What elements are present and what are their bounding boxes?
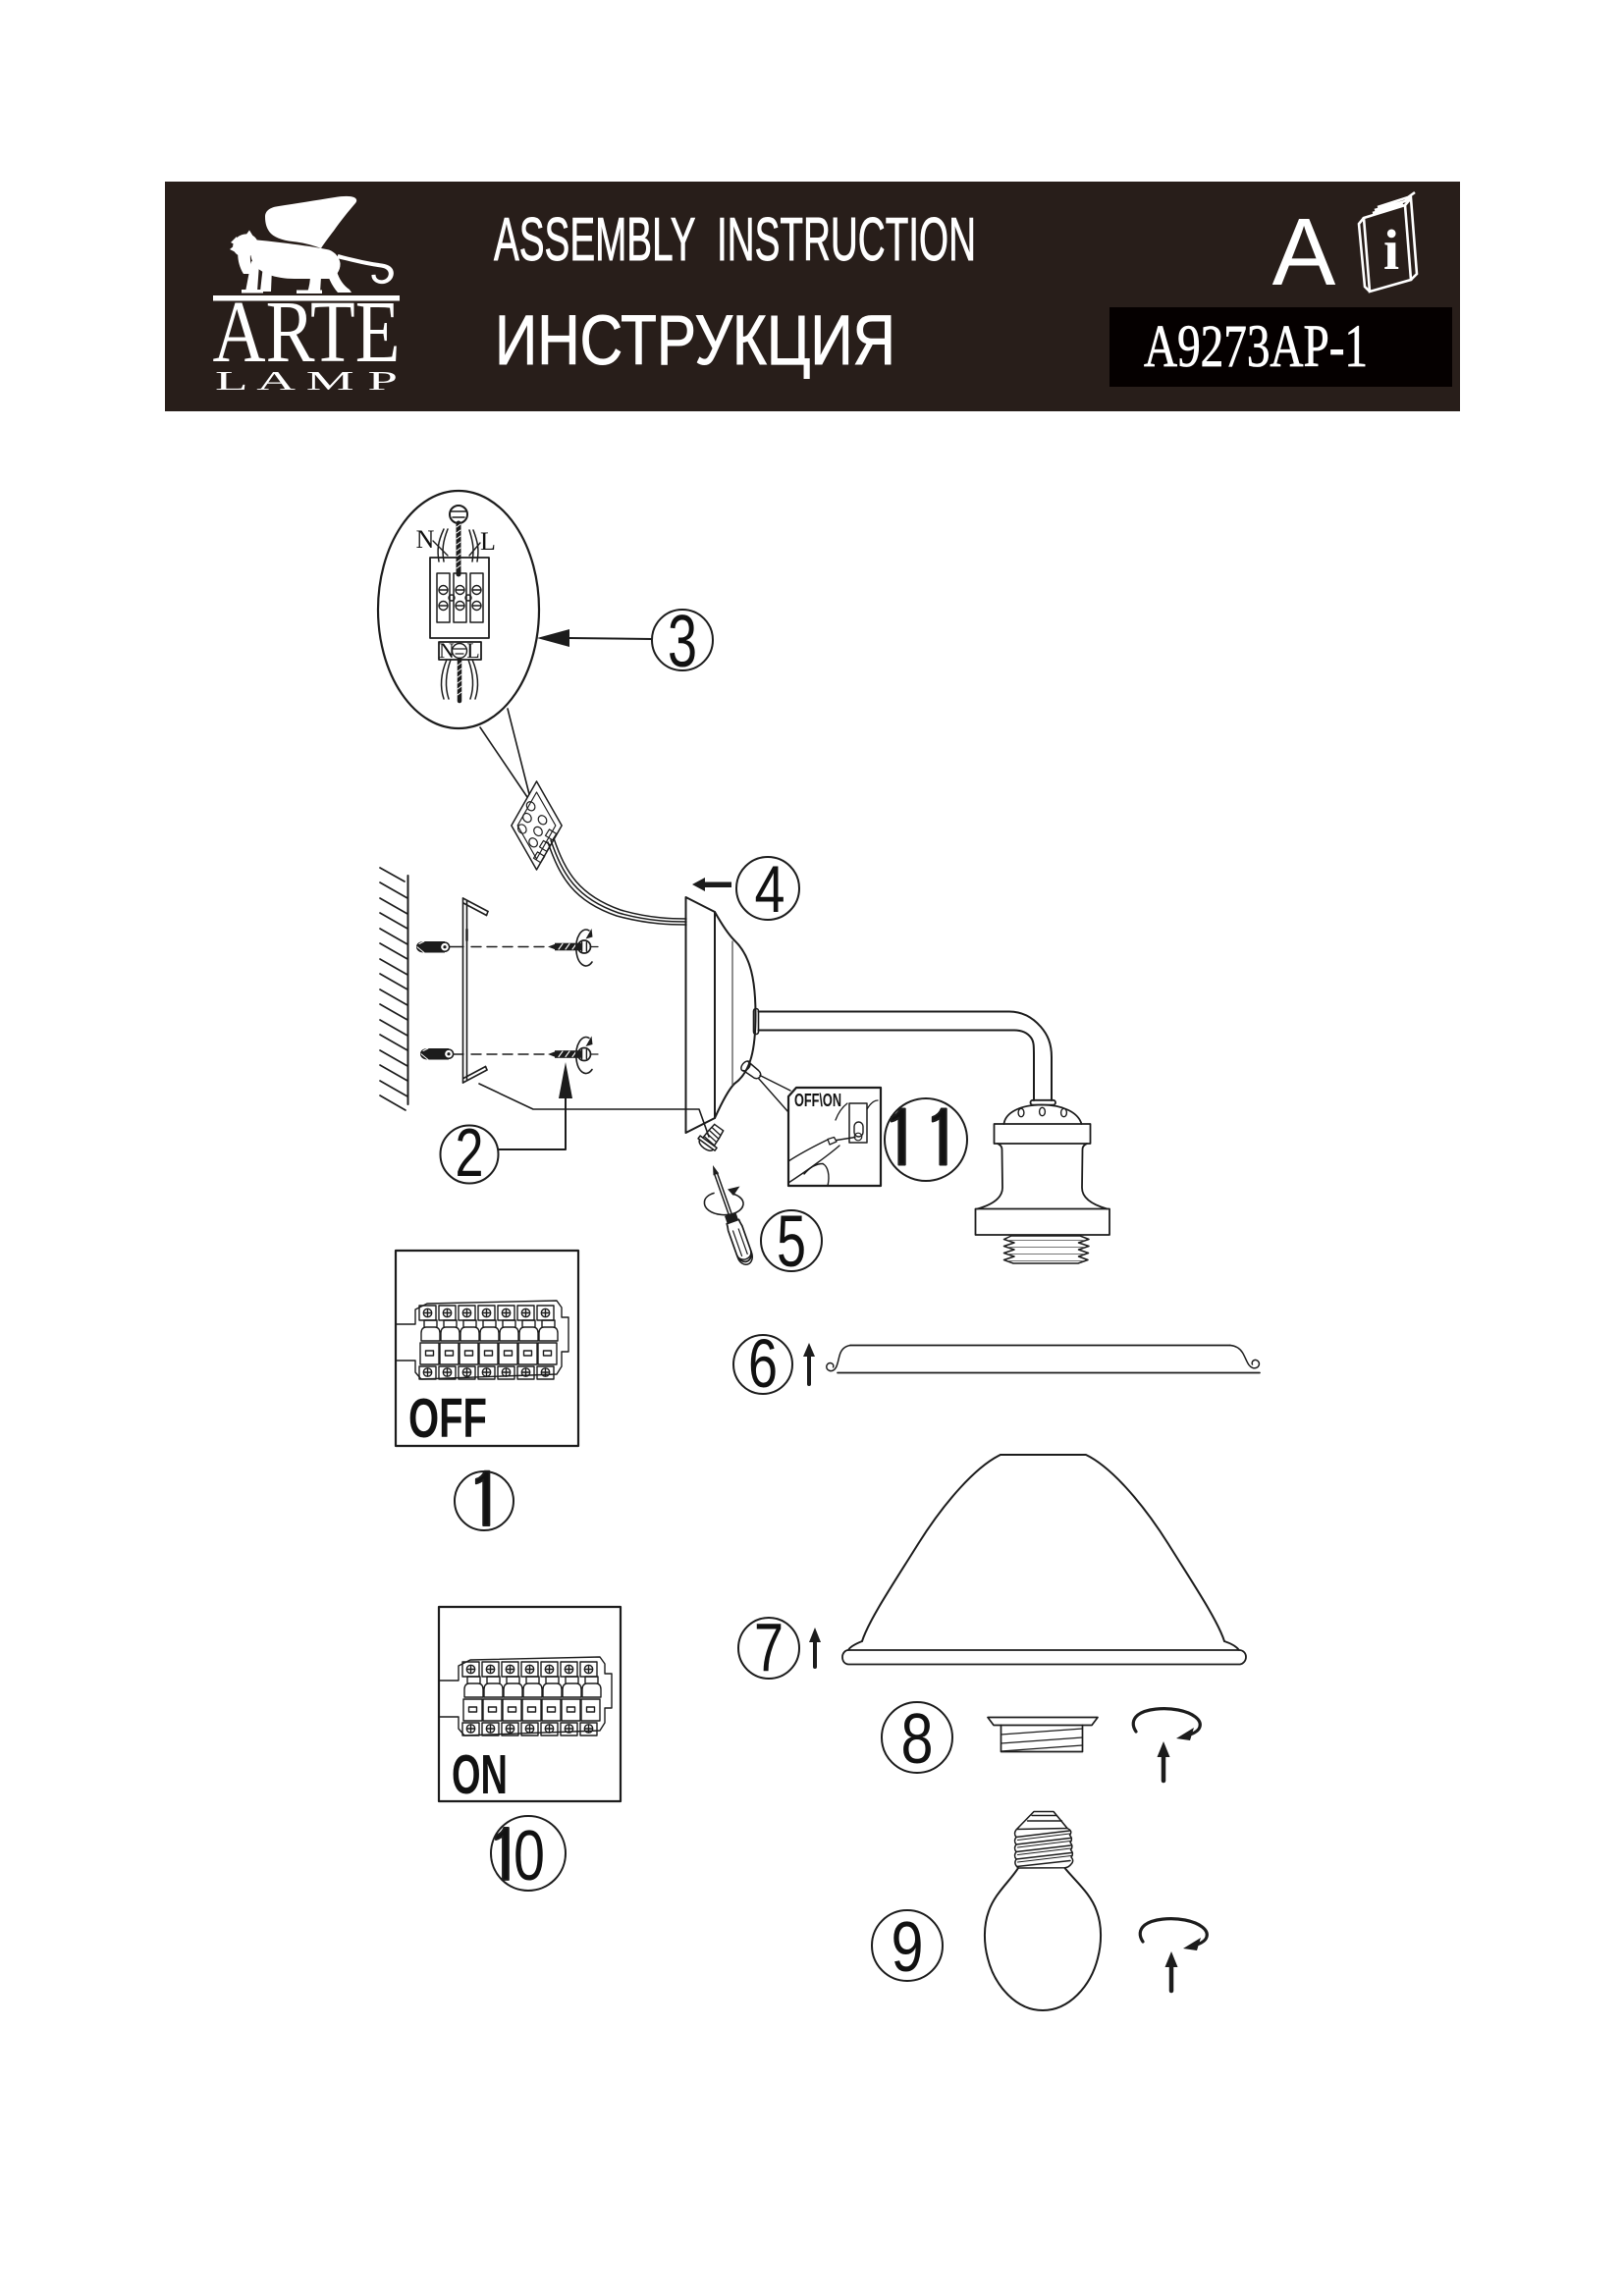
svg-text:OFF\ON: OFF\ON xyxy=(794,1091,841,1110)
svg-text:A: A xyxy=(1272,198,1336,305)
svg-text:ИНСТРУКЦИЯ: ИНСТРУКЦИЯ xyxy=(495,302,895,380)
svg-text:7: 7 xyxy=(754,1609,784,1685)
svg-text:8: 8 xyxy=(901,1700,934,1779)
svg-text:L: L xyxy=(480,527,496,556)
svg-text:9: 9 xyxy=(892,1908,924,1987)
svg-text:ASSEMBLY INSTRUCTION: ASSEMBLY INSTRUCTION xyxy=(494,206,976,274)
svg-text:0: 0 xyxy=(514,1817,545,1896)
svg-text:6: 6 xyxy=(748,1325,778,1402)
svg-text:3: 3 xyxy=(668,600,697,682)
svg-text:A9273AP-1: A9273AP-1 xyxy=(1144,314,1368,380)
svg-text:ON: ON xyxy=(452,1743,508,1806)
svg-text:5: 5 xyxy=(777,1201,806,1282)
svg-text:4: 4 xyxy=(755,852,785,927)
svg-text:N: N xyxy=(416,525,435,554)
svg-text:L A M P: L A M P xyxy=(215,366,398,396)
svg-text:i: i xyxy=(1383,218,1399,282)
svg-text:OFF: OFF xyxy=(408,1387,487,1450)
svg-text:2: 2 xyxy=(456,1114,484,1191)
svg-text:L: L xyxy=(466,638,479,663)
